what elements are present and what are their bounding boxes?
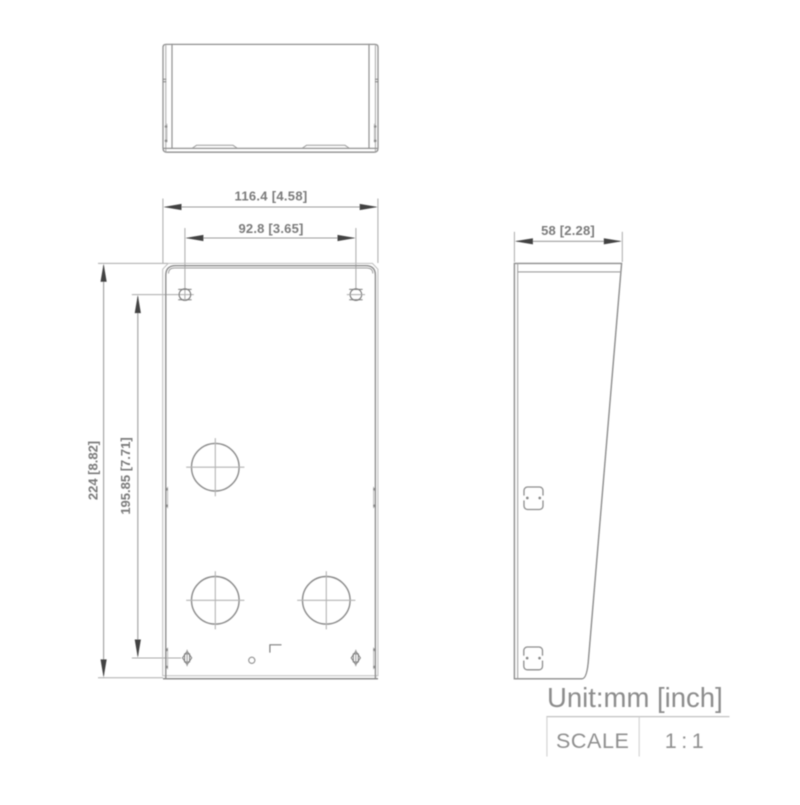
svg-text:116.4 [4.58]: 116.4 [4.58] bbox=[235, 189, 308, 204]
svg-text:58 [2.28]: 58 [2.28] bbox=[541, 223, 595, 238]
svg-text:224 [8.82]: 224 [8.82] bbox=[86, 441, 101, 500]
svg-text:Unit:mm [inch]: Unit:mm [inch] bbox=[547, 682, 723, 713]
svg-text:1:1: 1:1 bbox=[665, 729, 708, 753]
svg-text:92.8 [3.65]: 92.8 [3.65] bbox=[238, 221, 303, 236]
svg-text:SCALE: SCALE bbox=[556, 729, 630, 753]
svg-text:195.85 [7.71]: 195.85 [7.71] bbox=[118, 437, 133, 514]
